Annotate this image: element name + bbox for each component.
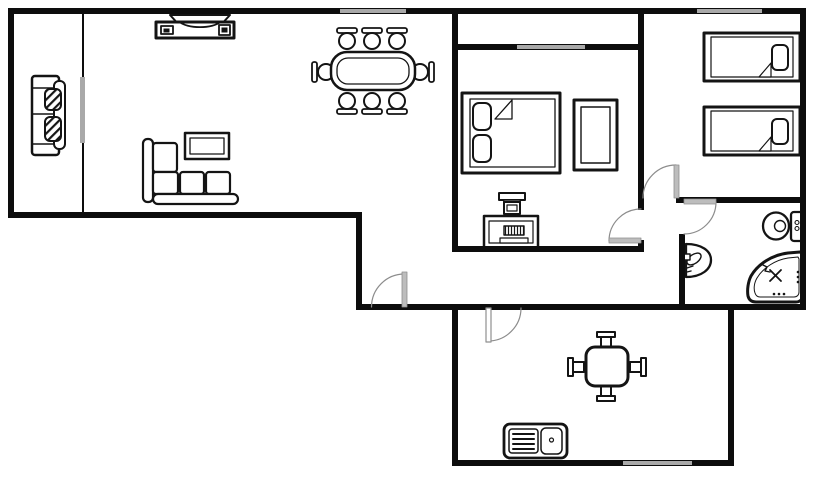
- door-bedroom-1: [609, 209, 641, 243]
- dining-set: [312, 28, 434, 114]
- door-bedroom-2: [643, 165, 679, 198]
- floor-plan: [0, 0, 814, 486]
- kitchen-sink-unit: [504, 424, 567, 458]
- coffee-table: [185, 133, 229, 159]
- kitchen-table-set: [568, 332, 646, 401]
- master-bed: [462, 93, 560, 173]
- door-kitchen: [486, 308, 521, 342]
- tv-console: [156, 15, 234, 38]
- desk-computer: [484, 193, 538, 248]
- door-entry: [372, 272, 408, 307]
- wardrobe: [574, 100, 617, 170]
- pedestal-sink: [684, 244, 711, 277]
- floor-plan-canvas: [0, 0, 814, 486]
- door-bathroom: [684, 199, 716, 234]
- balcony-loveseat: [32, 76, 65, 155]
- corner-bathtub: [748, 252, 803, 302]
- toilet: [763, 212, 803, 241]
- twin-bed-2: [704, 107, 800, 155]
- twin-bed-1: [704, 33, 800, 81]
